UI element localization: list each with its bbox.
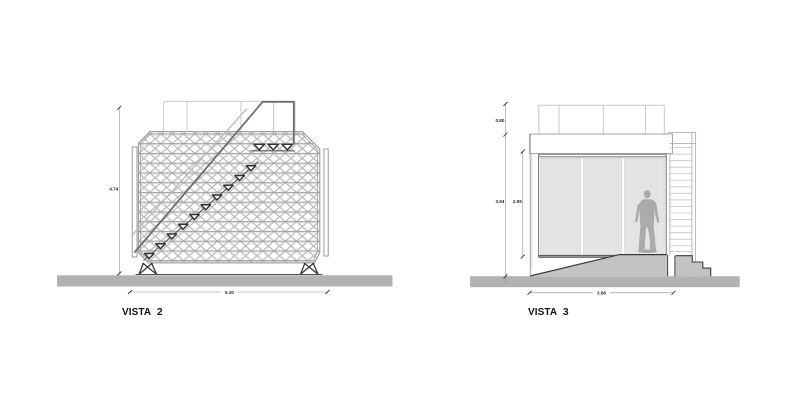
svg-text:3.94: 3.94 [495,199,504,204]
svg-text:3.88: 3.88 [597,291,606,296]
svg-text:5.30: 5.30 [225,290,234,295]
svg-text:0.80: 0.80 [495,118,504,123]
svg-text:VISTA 3: VISTA 3 [528,307,569,318]
svg-text:VISTA 2: VISTA 2 [122,307,163,318]
svg-text:2.95: 2.95 [513,199,522,204]
svg-text:4.74: 4.74 [109,186,118,191]
